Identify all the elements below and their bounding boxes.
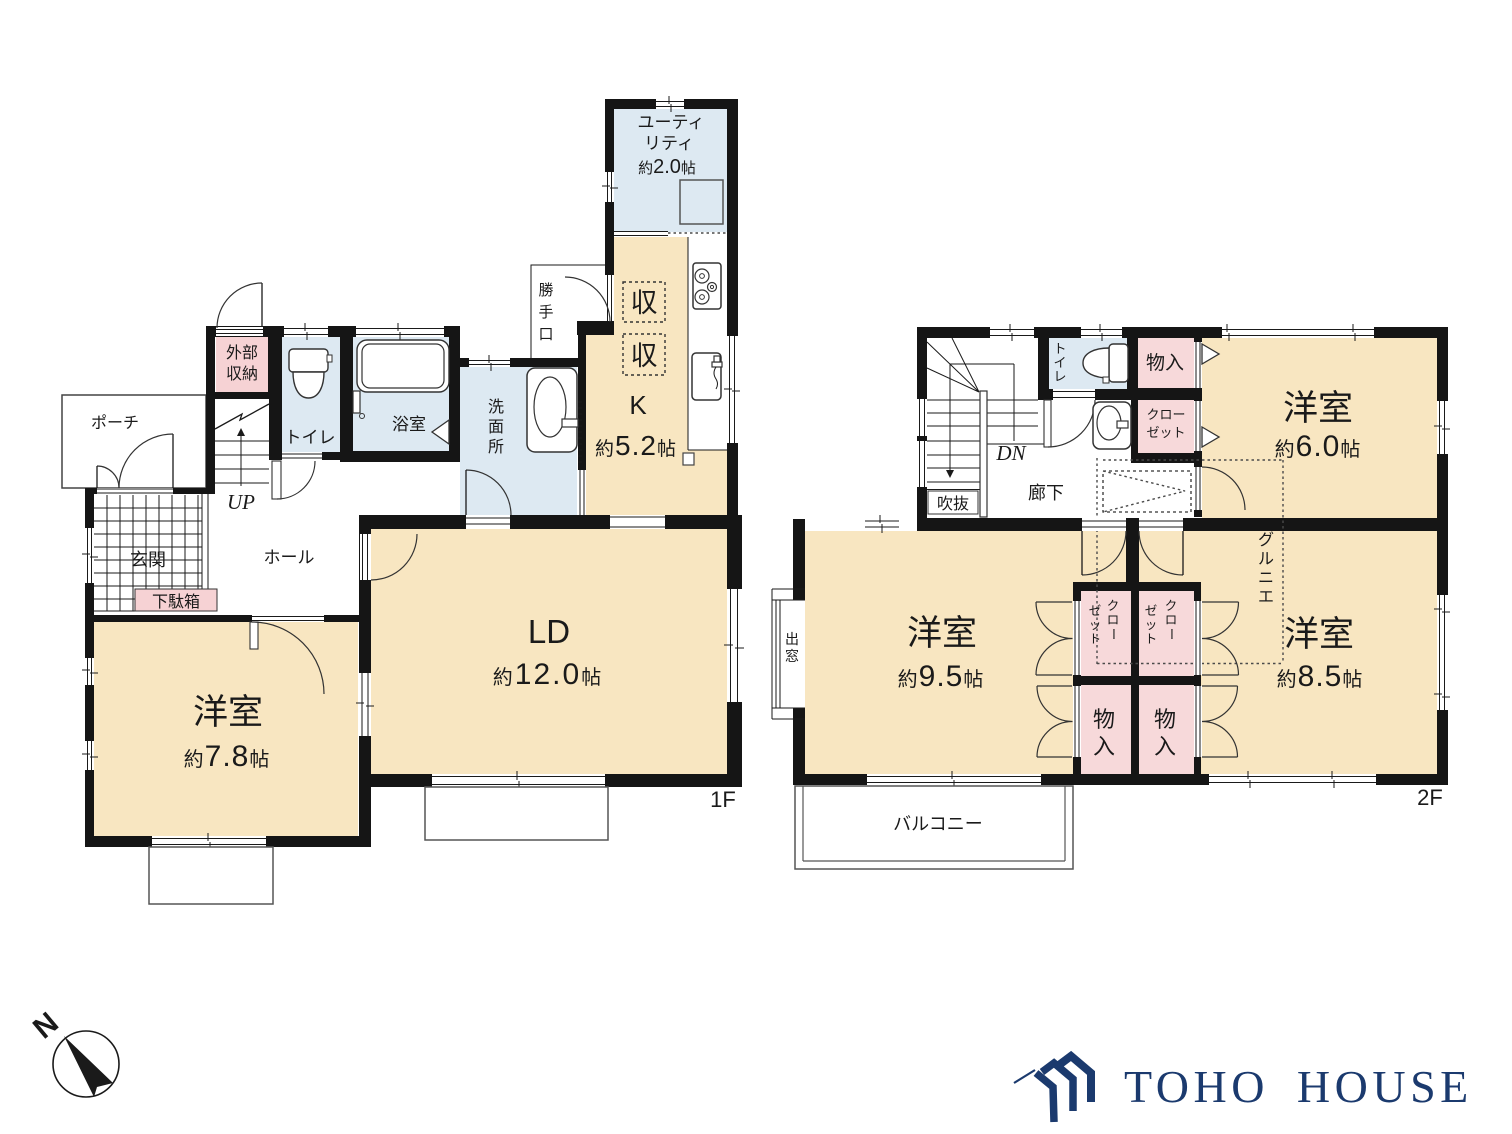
svg-text:ポーチ: ポーチ (91, 414, 139, 432)
svg-text:所: 所 (488, 438, 504, 456)
svg-text:ク: ク (1107, 599, 1120, 613)
svg-text:トイレ: トイレ (285, 428, 336, 447)
svg-text:UP: UP (227, 490, 255, 514)
svg-text:ト: ト (1145, 632, 1158, 646)
svg-text:ル: ル (1258, 551, 1274, 568)
svg-text:面: 面 (488, 419, 504, 436)
svg-text:約2.0帖: 約2.0帖 (638, 156, 696, 178)
svg-text:入: 入 (1154, 734, 1176, 759)
svg-text:レ: レ (1053, 369, 1066, 384)
svg-text:勝: 勝 (538, 282, 553, 299)
svg-text:K: K (629, 390, 647, 420)
svg-text:ゼ: ゼ (1089, 604, 1102, 618)
svg-text:口: 口 (538, 326, 553, 343)
svg-text:入: 入 (1093, 734, 1115, 759)
svg-text:ッ: ッ (1089, 618, 1102, 632)
svg-text:ッ: ッ (1145, 618, 1158, 632)
svg-text:ユーティ: ユーティ (638, 113, 705, 132)
svg-text:窓: 窓 (785, 648, 799, 664)
svg-text:ロ: ロ (1165, 613, 1178, 627)
svg-text:浴室: 浴室 (392, 415, 426, 434)
svg-text:LD: LD (528, 613, 570, 650)
svg-text:DN: DN (995, 441, 1026, 465)
svg-text:玄関: 玄関 (130, 550, 166, 570)
svg-text:ト: ト (1053, 341, 1066, 356)
svg-text:洋室: 洋室 (193, 693, 263, 732)
svg-text:物: 物 (1093, 707, 1115, 732)
svg-text:出: 出 (785, 631, 799, 647)
svg-text:イ: イ (1053, 355, 1066, 370)
svg-text:洋室: 洋室 (1283, 389, 1353, 428)
svg-text:TOHO HOUSE: TOHO HOUSE (1124, 1061, 1473, 1112)
svg-text:洗: 洗 (488, 398, 504, 416)
svg-text:手: 手 (538, 304, 553, 321)
svg-text:バルコニー: バルコニー (893, 814, 983, 834)
svg-text:ー: ー (1106, 628, 1120, 641)
svg-text:廊下: 廊下 (1028, 483, 1064, 503)
svg-text:ホール: ホール (264, 548, 315, 567)
svg-text:ク: ク (1165, 599, 1178, 613)
svg-text:1F: 1F (710, 787, 736, 812)
svg-text:リティ: リティ (644, 134, 694, 153)
svg-text:クロー: クロー (1146, 407, 1185, 422)
svg-text:ー: ー (1164, 628, 1178, 641)
svg-text:吹抜: 吹抜 (937, 495, 969, 513)
svg-text:ト: ト (1089, 632, 1102, 646)
svg-text:収: 収 (631, 288, 658, 318)
svg-text:収納: 収納 (226, 365, 258, 383)
svg-text:下駄箱: 下駄箱 (152, 593, 200, 611)
svg-text:2F: 2F (1417, 785, 1443, 810)
svg-text:物入: 物入 (1146, 352, 1184, 374)
svg-text:洋室: 洋室 (907, 614, 977, 653)
svg-text:外部: 外部 (226, 344, 258, 362)
svg-text:ゼット: ゼット (1146, 425, 1185, 440)
svg-text:収: 収 (631, 341, 658, 371)
svg-text:洋室: 洋室 (1284, 615, 1354, 654)
svg-text:ロ: ロ (1107, 613, 1120, 627)
svg-text:物: 物 (1154, 707, 1176, 732)
svg-text:ゼ: ゼ (1145, 604, 1158, 618)
svg-text:エ: エ (1258, 589, 1274, 606)
svg-text:グ: グ (1258, 531, 1274, 549)
svg-text:ニ: ニ (1258, 570, 1274, 587)
